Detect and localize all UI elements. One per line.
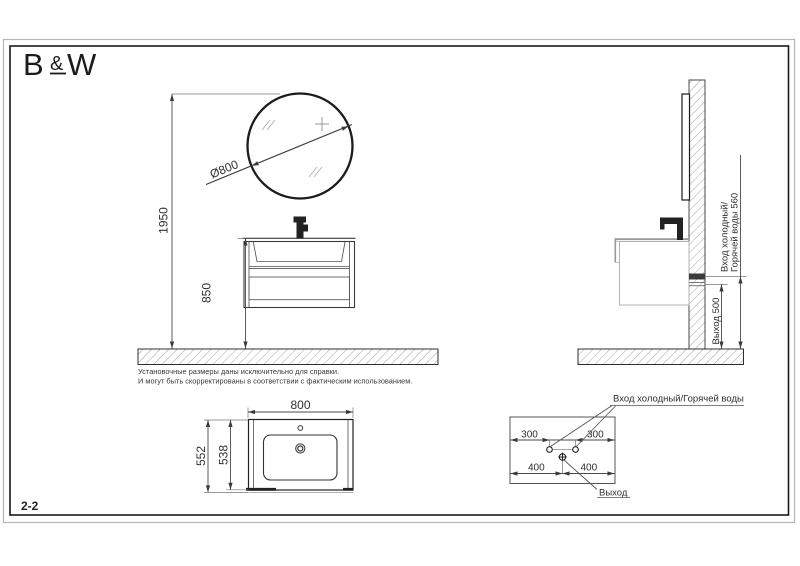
technical-drawing: B & W Ø800 [0,0,800,566]
wall-section [689,80,705,349]
drawing-sheet: B & W Ø800 [0,0,800,566]
sheet-number: 2-2 [21,499,39,513]
note-line2: И могут быть скорректированы в соответст… [138,377,412,386]
basin-top [264,435,338,480]
dim-left-300: 300 [521,430,538,441]
dim-right-400: 400 [580,463,597,474]
logo-letter-b: B [23,47,45,82]
inlet-callout-label: Вход холодный/Горячей воды [613,394,744,405]
dim-right-300: 300 [587,430,604,441]
inlet-height-label-line2: Горячей воды 560 [730,193,741,272]
note-line1: Установочные размеры даны исключительно … [138,367,339,376]
dim-left-400: 400 [528,463,545,474]
sink-depth-outer-label: 552 [194,446,208,466]
sink-depth-inner-label: 538 [217,445,231,465]
vanity-side [615,238,690,305]
mirror-side [682,94,690,200]
outlet-callout-label: Выход [599,488,628,499]
cabinet-height-label: 850 [200,283,214,303]
outlet-height-label: Выход 500 [711,298,722,345]
logo-ampersand: & [50,53,64,75]
faucet-hole [298,426,303,431]
floor-front [138,349,438,365]
drain-hole [296,444,305,453]
logo-letter-w: W [67,47,97,82]
floor-side [578,349,744,365]
sink-width-label: 800 [290,398,310,412]
total-height-label: 1950 [157,207,171,234]
